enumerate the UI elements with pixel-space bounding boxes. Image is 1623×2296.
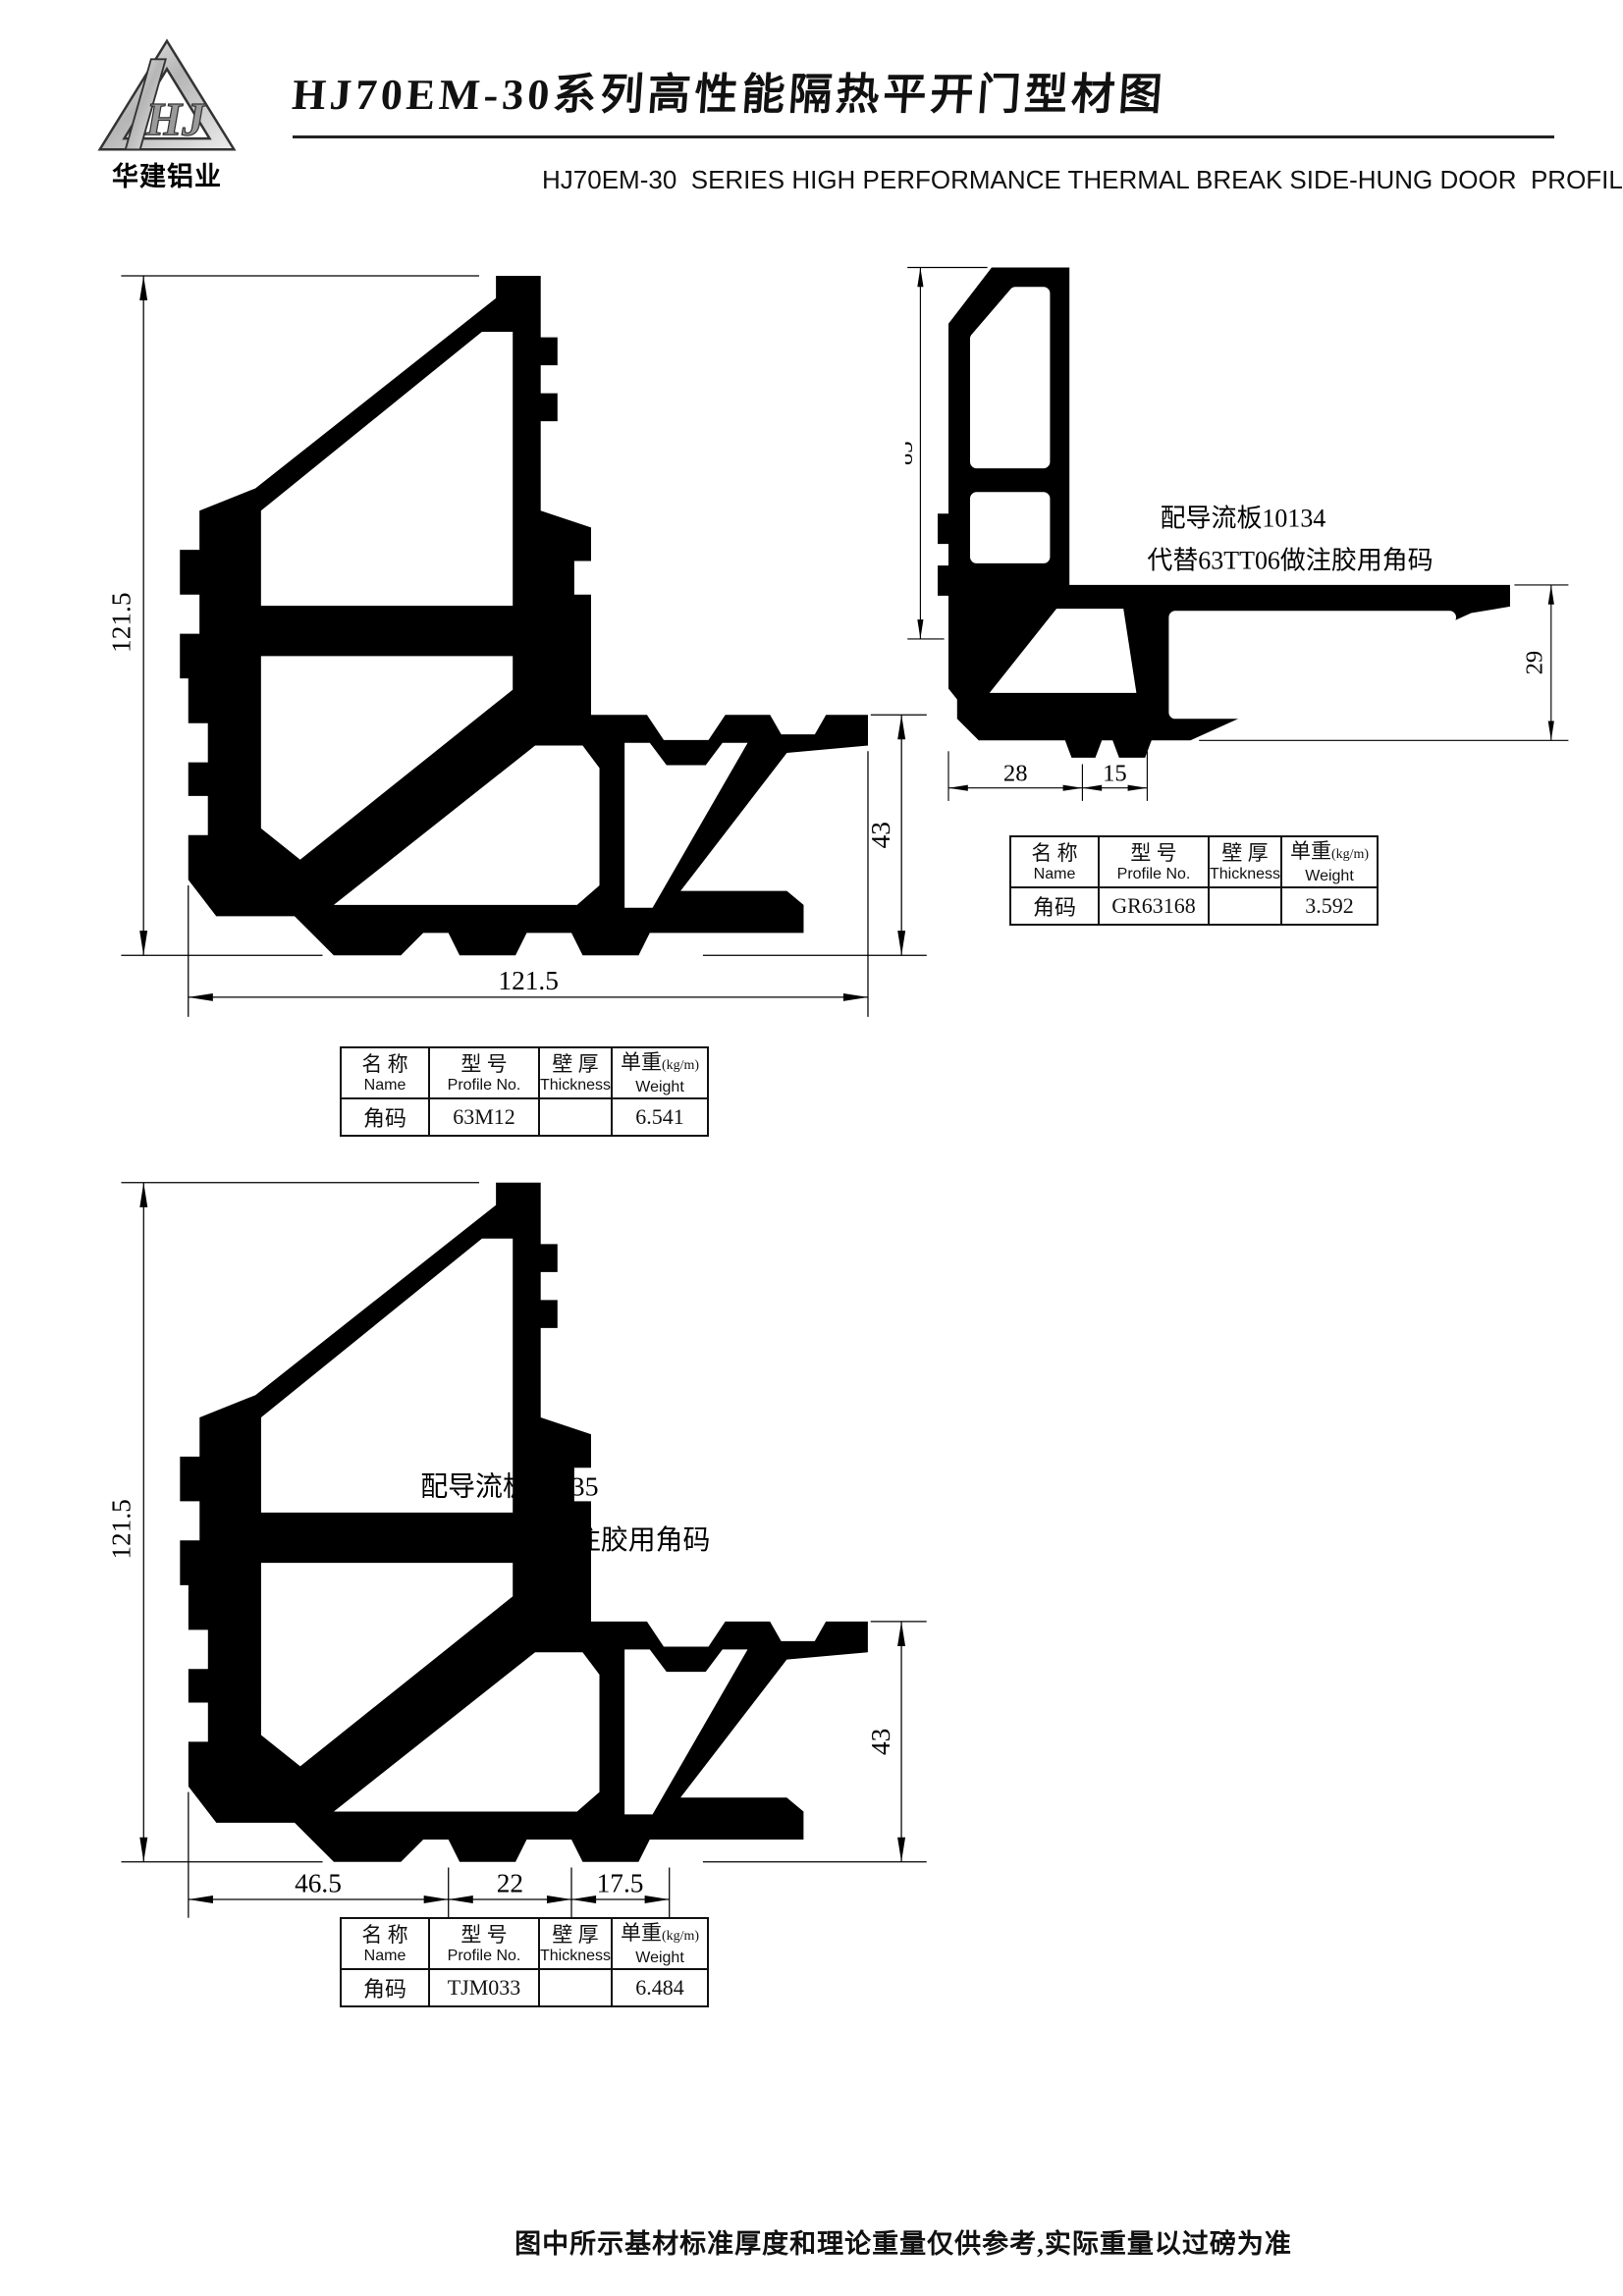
d2-dim-right: 29 — [1522, 651, 1548, 675]
d2-annotation-line2: 代替63TT06做注胶用角码 — [1147, 547, 1433, 575]
table-header-row: 名 称Name 型 号Profile No. 壁 厚Thickness 单重(k… — [341, 1918, 708, 1969]
d3-dim-bottom1: 46.5 — [295, 1869, 342, 1898]
footer-note: 图中所示基材标准厚度和理论重量仅供参考,实际重量以过磅为准 — [471, 2222, 1335, 2261]
col-model: 型 号Profile No. — [429, 1047, 539, 1098]
col-name-en: Name — [1011, 866, 1098, 883]
col-thickness: 壁 厚Thickness — [539, 1047, 612, 1098]
col-thickness-en: Thickness — [1210, 866, 1280, 883]
col-weight-en: Weight — [613, 1949, 707, 1967]
d3-dim-bottom2: 22 — [497, 1869, 523, 1898]
d3-dim-bottom3: 17.5 — [597, 1869, 644, 1898]
cell-thickness — [539, 1969, 612, 2006]
cell-weight: 6.484 — [612, 1969, 708, 2006]
table-row: 角码 63M12 6.541 — [341, 1098, 708, 1136]
page-title: HJ70EM-30系列高性能隔热平开门型材图 — [291, 59, 1168, 122]
d3-annotation-line1: 配导流板10135 — [420, 1471, 598, 1503]
col-weight-cn: 单重(kg/m) — [1282, 838, 1377, 868]
col-model-en: Profile No. — [430, 1077, 538, 1095]
company-logo: HJ — [93, 37, 241, 153]
col-weight-cn: 单重(kg/m) — [613, 1920, 707, 1949]
drawing-3: 121.5 43 46.5 22 17.5 配导流板10135 代替63M12做… — [110, 1160, 960, 1932]
col-weight: 单重(kg/m)Weight — [612, 1918, 708, 1969]
d2-dim-left: 85 — [905, 441, 918, 465]
col-weight: 单重(kg/m)Weight — [1281, 836, 1378, 887]
col-thickness-en: Thickness — [540, 1077, 611, 1095]
drawing-2: 85 29 28 15 配导流板10134 代替63TT06做注胶用角码 — [905, 241, 1596, 812]
col-thickness-cn: 壁 厚 — [1210, 840, 1280, 866]
spec-table-gr63168: 名 称Name 型 号Profile No. 壁 厚Thickness 单重(k… — [1009, 835, 1379, 926]
d1-dim-left: 121.5 — [110, 592, 136, 653]
table-row: 角码 TJM033 6.484 — [341, 1969, 708, 2006]
col-name-cn: 名 称 — [1011, 840, 1098, 866]
d2-profile-hole-leg — [1175, 617, 1449, 713]
col-model-en: Profile No. — [430, 1948, 538, 1965]
d2-dim-bottom2: 15 — [1103, 761, 1127, 787]
cell-name: 角码 — [1010, 887, 1099, 925]
cell-name: 角码 — [341, 1098, 429, 1136]
d1-dim-bottom: 121.5 — [498, 966, 559, 995]
d2-profile-hole-top — [977, 294, 1044, 462]
logo-text: 华建铝业 — [86, 155, 247, 193]
cell-profile-no: GR63168 — [1099, 887, 1209, 925]
col-weight: 单重(kg/m)Weight — [612, 1047, 708, 1098]
spec-table-tjm033: 名 称Name 型 号Profile No. 壁 厚Thickness 单重(k… — [340, 1917, 709, 2007]
col-weight-en: Weight — [1282, 868, 1377, 885]
col-thickness-cn: 壁 厚 — [540, 1051, 611, 1077]
col-model-cn: 型 号 — [430, 1922, 538, 1948]
table-header-row: 名 称Name 型 号Profile No. 壁 厚Thickness 单重(k… — [341, 1047, 708, 1098]
cell-profile-no: 63M12 — [429, 1098, 539, 1136]
drawing-1: 121.5 121.5 43 — [110, 253, 960, 1037]
d1-dim-right: 43 — [866, 822, 895, 848]
cell-thickness — [1209, 887, 1281, 925]
logo-monogram: HJ — [145, 94, 207, 145]
col-thickness-en: Thickness — [540, 1948, 611, 1965]
d3-dim-right: 43 — [866, 1729, 895, 1755]
table-header-row: 名 称Name 型 号Profile No. 壁 厚Thickness 单重(k… — [1010, 836, 1378, 887]
col-thickness: 壁 厚Thickness — [1209, 836, 1281, 887]
d2-dim-bottom1: 28 — [1003, 761, 1028, 787]
col-model: 型 号Profile No. — [1099, 836, 1209, 887]
spec-table-63m12: 名 称Name 型 号Profile No. 壁 厚Thickness 单重(k… — [340, 1046, 709, 1137]
cell-name: 角码 — [341, 1969, 429, 2006]
cell-profile-no: TJM033 — [429, 1969, 539, 2006]
col-weight-en: Weight — [613, 1079, 707, 1096]
d3-dim-left: 121.5 — [110, 1499, 136, 1560]
col-model-cn: 型 号 — [1100, 840, 1208, 866]
col-thickness: 壁 厚Thickness — [539, 1918, 612, 1969]
page: HJ 华建铝业 HJ70EM-30系列高性能隔热平开门型材图 HJ70EM-30… — [0, 0, 1623, 2296]
col-name-en: Name — [342, 1077, 428, 1095]
d2-profile-hole-mid — [977, 499, 1044, 557]
table-row: 角码 GR63168 3.592 — [1010, 887, 1378, 925]
cell-weight: 6.541 — [612, 1098, 708, 1136]
col-model-cn: 型 号 — [430, 1051, 538, 1077]
col-name-en: Name — [342, 1948, 428, 1965]
d3-annotation-line2: 代替63M12做注胶用角码 — [412, 1524, 711, 1556]
col-name: 名 称Name — [341, 1918, 429, 1969]
d2-annotation-line1: 配导流板10134 — [1161, 505, 1326, 533]
col-name: 名 称Name — [341, 1047, 429, 1098]
page-subtitle: HJ70EM-30 SERIES HIGH PERFORMANCE THERMA… — [542, 165, 1623, 195]
col-thickness-cn: 壁 厚 — [540, 1922, 611, 1948]
title-rule — [293, 135, 1554, 138]
cell-thickness — [539, 1098, 612, 1136]
col-weight-cn: 单重(kg/m) — [613, 1049, 707, 1079]
col-name-cn: 名 称 — [342, 1051, 428, 1077]
col-model-en: Profile No. — [1100, 866, 1208, 883]
col-model: 型 号Profile No. — [429, 1918, 539, 1969]
col-name-cn: 名 称 — [342, 1922, 428, 1948]
col-name: 名 称Name — [1010, 836, 1099, 887]
cell-weight: 3.592 — [1281, 887, 1378, 925]
